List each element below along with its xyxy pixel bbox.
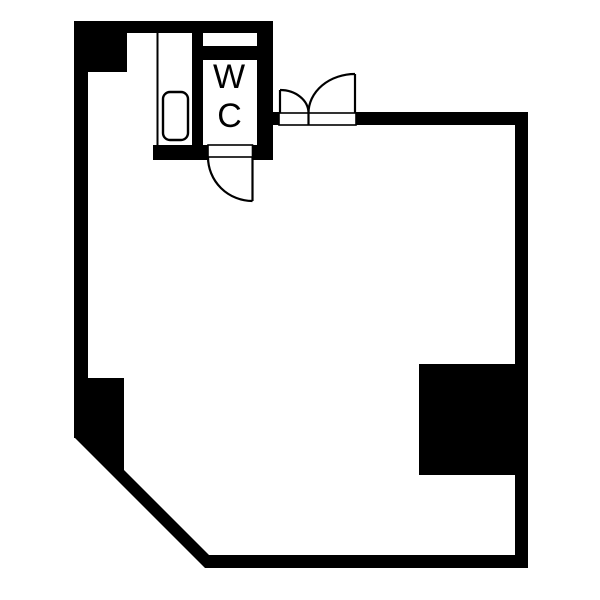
entry-door-large-swing-arc [309, 74, 356, 113]
wc-label-line2: C [217, 97, 242, 135]
wall-bottom [205, 555, 528, 568]
floor-plan: W C [0, 0, 600, 600]
wc-door [208, 145, 253, 201]
wall-bottomleft-chamfer [74, 378, 211, 568]
wc-label-line1: W [213, 58, 245, 96]
wc-door-swing-arc [208, 157, 253, 201]
entry-door-small-swing-arc [280, 90, 309, 113]
wc-door-opening [208, 145, 253, 157]
wall-right-pillar [419, 364, 515, 475]
entry-door-opening [279, 113, 356, 125]
wall-closet-bottom-bar [153, 145, 208, 160]
wall-right [515, 112, 528, 568]
wall-top-main [356, 112, 528, 125]
walls [74, 21, 528, 568]
wall-wc-door-side-bar [252, 145, 273, 160]
wc-room-label: W C [213, 58, 245, 135]
wall-entry-door-stub [273, 112, 279, 125]
entry-double-door [279, 74, 356, 125]
wall-left [74, 21, 88, 438]
washer-pan-fixture [163, 92, 188, 140]
wall-wc-right [257, 21, 273, 160]
wall-wc-left [192, 33, 203, 160]
floor-plan-page: W C [0, 0, 600, 600]
